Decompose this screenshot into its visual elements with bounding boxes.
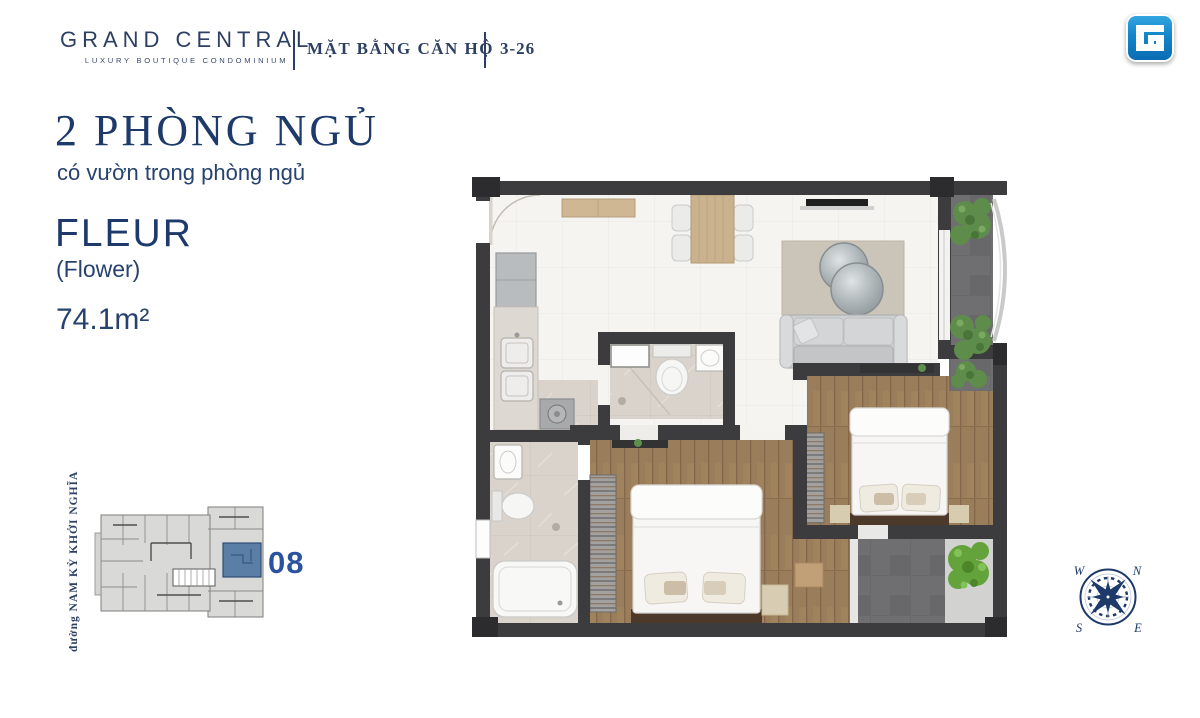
garden-glass-sill: [850, 539, 858, 623]
compass-north-label: N: [1132, 564, 1142, 578]
cushion: [906, 493, 926, 505]
brand-block: GRAND CENTRAL LUXURY BOUTIQUE CONDOMINIU…: [60, 27, 313, 65]
toilet: [656, 359, 688, 395]
toilet-tank: [653, 345, 691, 357]
bathroom-2-window: [476, 520, 490, 558]
unit-title: 2 PHÒNG NGỦ: [55, 105, 379, 156]
bedroom-1-door-gap: [740, 425, 785, 440]
cushion: [664, 581, 686, 595]
bathroom-2-top-wall: [490, 430, 590, 442]
tv: [806, 199, 868, 206]
bench: [830, 505, 850, 523]
unit-subtitle: có vườn trong phòng ngủ: [57, 160, 305, 186]
bathroom-1-door-gap: [620, 425, 658, 440]
cushion: [704, 581, 726, 595]
garden-floor: [858, 539, 945, 623]
toilet-tank: [492, 491, 502, 521]
brand-name: GRAND CENTRAL: [60, 27, 313, 53]
compass-south-label: S: [1076, 621, 1083, 635]
tv-console: [800, 206, 874, 210]
compass-rose-icon: W N S E: [1068, 550, 1156, 642]
header-divider: [293, 30, 295, 70]
unit-area: 74.1m²: [56, 303, 149, 337]
basin: [696, 345, 724, 371]
toilet: [502, 493, 534, 519]
garden-plants: [948, 542, 989, 589]
shower-drain: [618, 397, 626, 405]
page-title: MẶT BẰNG CĂN HỘ: [307, 39, 494, 59]
balcony-curved-glass: [991, 199, 1005, 341]
garden-door-gap: [858, 525, 888, 539]
coffee-table: [831, 263, 883, 315]
dining-chair: [672, 205, 691, 231]
dining-chair: [734, 235, 753, 261]
compass-west-label: W: [1074, 564, 1086, 578]
shower-drain: [552, 523, 560, 531]
g-logo-icon: G: [1126, 14, 1174, 62]
nightstand: [795, 563, 823, 587]
unit-range: 3-26: [500, 39, 535, 59]
bedroom-2-bottom-wall: [793, 525, 1007, 539]
sideboard: [562, 199, 635, 217]
bathtub: [493, 561, 577, 617]
unit-number-label: 08: [268, 545, 304, 581]
bathroom-1-walls: [598, 332, 735, 344]
street-label: đường NAM KỲ KHỞI NGHĨA: [68, 480, 80, 652]
door-leaf: [489, 197, 493, 245]
floor-plan-rendering: [470, 175, 1020, 645]
dining-table: [691, 195, 734, 263]
g-logo-glyph: [1126, 14, 1174, 62]
sofa: [780, 315, 907, 368]
cushion: [874, 493, 894, 505]
duvet-fold: [631, 485, 762, 519]
bench: [762, 585, 788, 615]
vanity: [611, 345, 649, 367]
unit-name: FLEUR: [55, 212, 193, 256]
key-plan-highlighted-unit: [223, 543, 261, 577]
key-plan-left-wing: [101, 515, 210, 611]
wardrobe: [590, 475, 616, 612]
header-divider: [484, 32, 486, 68]
key-plan: [93, 503, 268, 623]
brand-tagline: LUXURY BOUTIQUE CONDOMINIUM: [60, 56, 313, 65]
duvet-fold: [850, 408, 949, 436]
dining-chair: [734, 205, 753, 231]
compass-east-label: E: [1133, 621, 1142, 635]
basin: [494, 445, 522, 479]
unit-name-translation: (Flower): [56, 256, 140, 283]
bench: [949, 505, 969, 523]
dining-chair: [672, 235, 691, 261]
